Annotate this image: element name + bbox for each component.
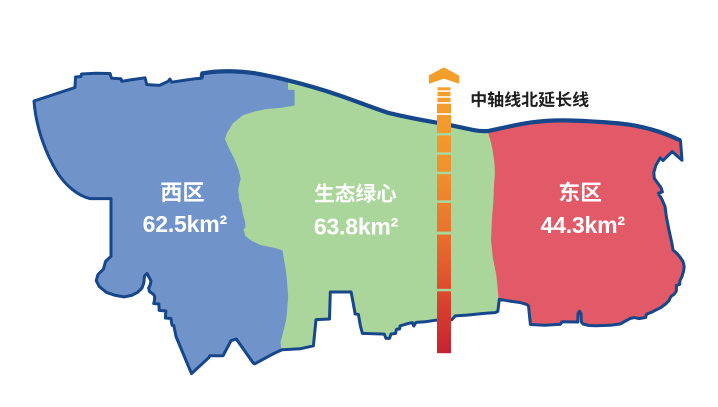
svg-text:62.5km²: 62.5km² xyxy=(143,211,228,237)
svg-text:63.8km²: 63.8km² xyxy=(314,214,399,240)
svg-text:44.3km²: 44.3km² xyxy=(541,212,626,238)
